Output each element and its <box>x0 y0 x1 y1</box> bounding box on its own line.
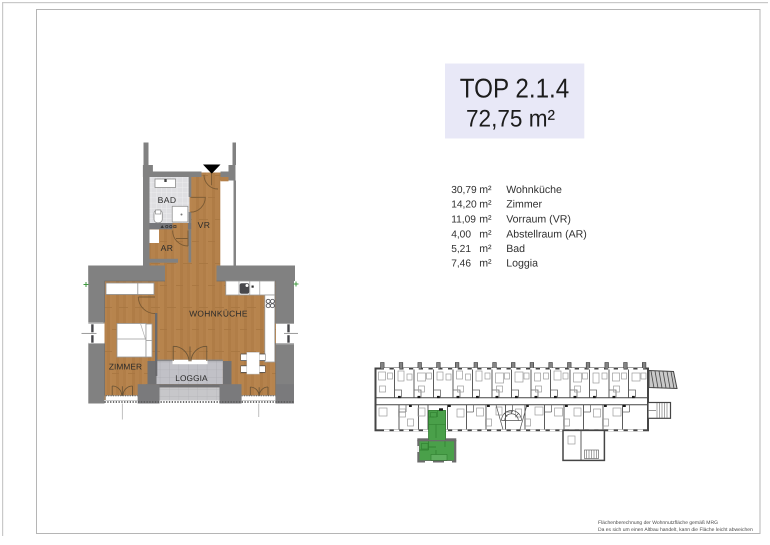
svg-text:Da es sich um einen Altbau han: Da es sich um einen Altbau handelt, kann… <box>598 527 753 533</box>
svg-text:11,09: 11,09 <box>451 215 476 226</box>
svg-text:BAD: BAD <box>158 195 177 205</box>
svg-text:m²: m² <box>479 229 492 241</box>
svg-text:Zimmer: Zimmer <box>506 199 542 211</box>
svg-text:m²: m² <box>479 258 492 270</box>
svg-text:TOP 2.1.4: TOP 2.1.4 <box>460 73 570 104</box>
svg-text:LOGGIA: LOGGIA <box>175 373 208 383</box>
svg-text:m²: m² <box>479 199 492 211</box>
svg-text:Vorraum (VR): Vorraum (VR) <box>506 214 571 226</box>
svg-text:7,46: 7,46 <box>451 259 471 270</box>
svg-text:m²: m² <box>479 184 492 196</box>
svg-text:Abstellraum (AR): Abstellraum (AR) <box>506 229 587 241</box>
svg-text:Bad: Bad <box>506 243 525 255</box>
svg-text:VR: VR <box>198 220 211 230</box>
svg-text:ZIMMER: ZIMMER <box>109 362 142 372</box>
svg-text:m²: m² <box>479 214 492 226</box>
svg-text:WOHNKÜCHE: WOHNKÜCHE <box>189 309 248 319</box>
svg-text:AR: AR <box>161 243 174 253</box>
svg-text:4,00: 4,00 <box>451 230 471 241</box>
svg-text:Flächenberechnung der Wohnnutz: Flächenberechnung der Wohnnutzfläche gem… <box>598 520 718 526</box>
svg-text:14,20: 14,20 <box>451 200 477 211</box>
svg-text:Wohnküche: Wohnküche <box>506 184 562 196</box>
svg-text:m²: m² <box>479 243 492 255</box>
svg-text:72,75 m²: 72,75 m² <box>466 106 555 133</box>
svg-text:30,79: 30,79 <box>451 185 477 196</box>
svg-text:5,21: 5,21 <box>451 244 471 255</box>
svg-text:Loggia: Loggia <box>506 258 538 270</box>
